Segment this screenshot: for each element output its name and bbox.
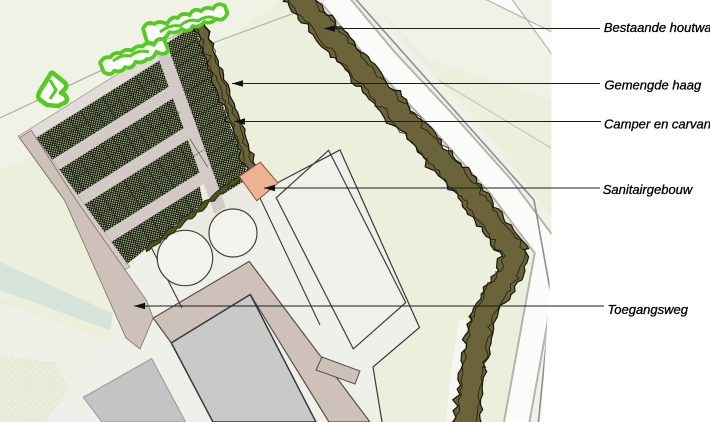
svg-text:Gemengde haag: Gemengde haag	[604, 77, 702, 92]
svg-text:Sanitairgebouw: Sanitairgebouw	[603, 182, 694, 197]
svg-text:Toegangsweg: Toegangsweg	[608, 302, 689, 317]
svg-text:Bestaande houtwal: Bestaande houtwal	[604, 20, 710, 35]
svg-text:Camper en carvanplaatsen: Camper en carvanplaatsen	[604, 117, 710, 132]
